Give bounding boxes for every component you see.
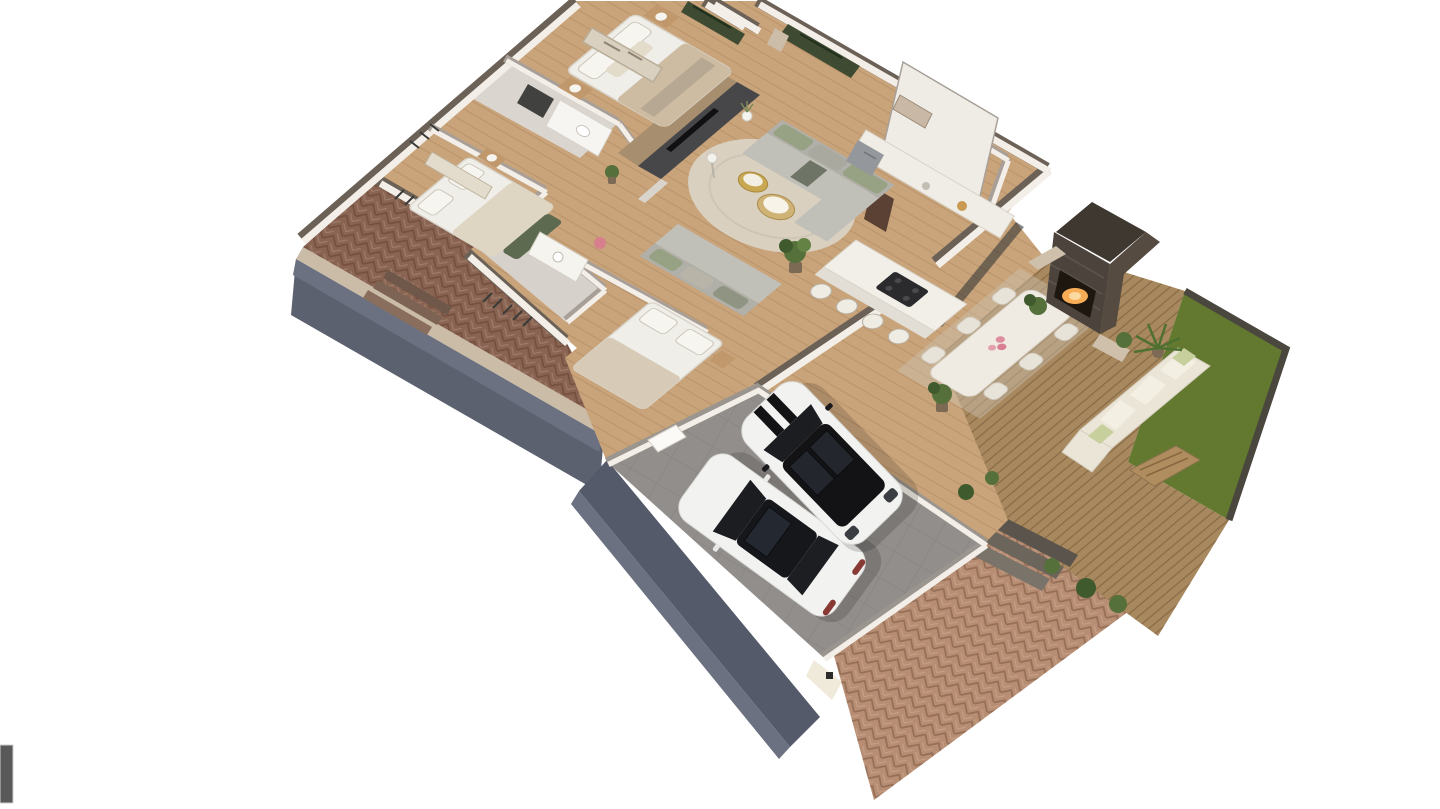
garage-corner-vent — [826, 672, 833, 679]
scrollbar-thumb[interactable] — [0, 745, 13, 803]
floorplan-viewer-page — [0, 0, 1440, 809]
basin — [553, 252, 563, 262]
fruit-bowl — [957, 201, 967, 211]
sink — [922, 182, 930, 190]
floor-lamp — [707, 153, 717, 163]
flower-vase — [594, 237, 606, 249]
fire-glow-core — [1069, 292, 1081, 300]
floorplan-3d-render — [0, 0, 1440, 809]
